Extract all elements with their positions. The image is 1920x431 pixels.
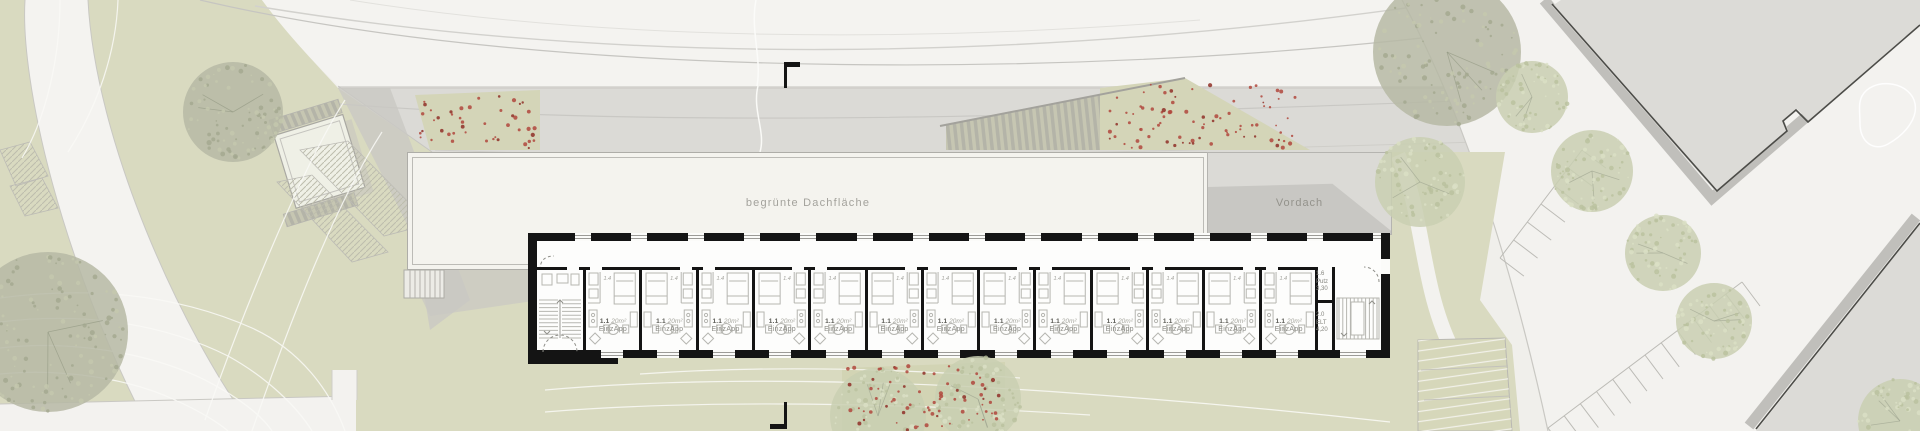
window xyxy=(995,350,1017,358)
window xyxy=(1251,233,1267,241)
window xyxy=(1194,233,1210,241)
apartment-label: 1.1 20m²EinzApp xyxy=(1093,318,1147,334)
canopy-label: Vordach xyxy=(1208,197,1391,209)
window xyxy=(688,233,704,241)
apartment-furniture: 1.4 xyxy=(699,270,752,350)
window xyxy=(882,350,904,358)
terrace-hatches xyxy=(0,141,430,262)
window xyxy=(1025,233,1041,241)
promenade-curve xyxy=(340,98,1540,118)
apartment-furniture: 1.4 xyxy=(586,270,639,350)
apartment-furniture: 1.4 xyxy=(980,270,1033,350)
apartment-label: 1.1 20m²EinzApp xyxy=(1205,318,1259,334)
window xyxy=(575,233,591,241)
window xyxy=(631,233,647,241)
pavilion xyxy=(256,97,376,227)
svg-text:1.4: 1.4 xyxy=(896,276,904,282)
footpath-edge xyxy=(25,0,150,431)
stair-north-wall xyxy=(579,267,583,270)
existing-building-southeast xyxy=(1749,217,1920,431)
tree xyxy=(1373,0,1521,126)
garden-beds xyxy=(1418,338,1512,431)
window xyxy=(969,233,985,241)
tree xyxy=(830,367,926,431)
path-connector xyxy=(332,370,357,400)
canopy: Vordach xyxy=(1207,152,1392,235)
window xyxy=(713,350,735,358)
path-south xyxy=(0,396,356,431)
apartment-furniture: 1.4 xyxy=(1036,270,1089,350)
path-edge xyxy=(0,396,356,404)
window xyxy=(1381,259,1390,274)
west-wall xyxy=(528,233,537,364)
window xyxy=(1220,350,1242,358)
apartment-label: 1.1 20m²EinzApp xyxy=(642,318,696,334)
svg-text:1.4: 1.4 xyxy=(783,276,791,282)
tree xyxy=(1551,130,1633,212)
path-edge xyxy=(332,370,357,400)
window xyxy=(1340,350,1366,358)
footpath-edge xyxy=(88,0,255,431)
window xyxy=(826,350,848,358)
svg-text:1.4: 1.4 xyxy=(670,276,678,282)
tree xyxy=(183,62,284,162)
promenade xyxy=(338,86,1545,152)
footpath-west xyxy=(25,0,255,431)
window xyxy=(1138,233,1154,241)
meadow-east xyxy=(1390,152,1520,431)
tree xyxy=(1496,61,1569,133)
meadow-south xyxy=(528,355,1390,431)
street-north xyxy=(262,0,1520,86)
promenade-edge xyxy=(338,86,432,152)
window xyxy=(857,233,873,241)
stairwell-west xyxy=(537,241,583,353)
stair-north-wall xyxy=(537,267,567,270)
apartment-furniture: 1.4 xyxy=(642,270,695,350)
east-wall xyxy=(1381,233,1390,358)
apartment-label: 1.1 20m²EinzApp xyxy=(755,318,809,334)
contour-line xyxy=(754,0,758,86)
existing-building-northeast xyxy=(1544,0,1920,198)
canopy-shadow xyxy=(1208,153,1391,234)
apartment-furniture: 1.4 xyxy=(1205,270,1258,350)
window xyxy=(1107,350,1129,358)
apartment-label: 1.1 20m²EinzApp xyxy=(924,318,978,334)
lawn-curve xyxy=(1860,84,1916,147)
apartment-label: 1.1 20m²EinzApp xyxy=(1149,318,1203,334)
window xyxy=(1051,350,1073,358)
apartment-furniture: 1.4 xyxy=(1149,270,1202,350)
path-east xyxy=(1398,155,1488,431)
site-plan: begrünte Dachfläche Vordach +14,05 1.41.… xyxy=(0,0,1920,431)
window xyxy=(938,350,960,358)
flower-patch-west xyxy=(415,90,540,150)
window xyxy=(1373,233,1381,241)
tree xyxy=(1857,378,1920,431)
exterior-steps xyxy=(404,270,444,298)
apartment-furniture: 1.4 xyxy=(755,270,808,350)
street-east xyxy=(1402,0,1920,431)
window xyxy=(800,233,816,241)
apartment-label: 1.1 20m²EinzApp xyxy=(586,318,640,334)
tree xyxy=(1625,214,1701,292)
street-curve xyxy=(350,0,1200,35)
apartment-label: 1.1 20m²EinzApp xyxy=(1036,318,1090,334)
apartment-label: 1.1 20m²EinzApp xyxy=(1262,318,1316,334)
apartment-furniture: 1.4 xyxy=(811,270,864,350)
window xyxy=(1276,350,1298,358)
window xyxy=(1164,350,1186,358)
pergola-stripes xyxy=(940,78,1185,150)
window xyxy=(657,350,679,358)
flower-patch-east xyxy=(1100,78,1310,150)
tree xyxy=(0,252,128,413)
window xyxy=(913,233,929,241)
svg-text:1.4: 1.4 xyxy=(1234,276,1242,282)
svg-text:1.4: 1.4 xyxy=(1054,276,1062,282)
parking-stalls xyxy=(1500,150,1884,431)
apartment-label: 1.1 20m²EinzApp xyxy=(699,318,753,334)
apartment-building-plan: +14,05 1.41.1 20m²EinzApp1.41.1 20m²Einz… xyxy=(528,233,1390,364)
svg-text:1.4: 1.4 xyxy=(829,276,837,282)
tree xyxy=(934,356,1022,431)
street-east-edge xyxy=(1402,0,1548,431)
contour-line xyxy=(756,86,761,152)
apartment-label: 1.1 20m²EinzApp xyxy=(811,318,865,334)
apartment-furniture: 1.4 xyxy=(1093,270,1146,350)
apartment-label: 1.1 20m²EinzApp xyxy=(980,318,1034,334)
apartment-label: 1.1 20m²EinzApp xyxy=(868,318,922,334)
flower-patch-south xyxy=(842,362,1005,431)
apartment-furniture: 1.4 xyxy=(868,270,921,350)
service-room-label: 2.0ELT4,20 xyxy=(1316,312,1332,335)
service-divider xyxy=(1318,300,1332,303)
apartment-furniture: 1.4 xyxy=(924,270,977,350)
window xyxy=(1307,233,1323,241)
svg-text:1.4: 1.4 xyxy=(603,276,611,282)
svg-text:1.4: 1.4 xyxy=(1121,276,1129,282)
svg-text:1.4: 1.4 xyxy=(716,276,724,282)
street-curve xyxy=(255,6,1420,50)
roof-label: begrünte Dachfläche xyxy=(408,197,1208,209)
svg-text:1.4: 1.4 xyxy=(1008,276,1016,282)
street-curve xyxy=(200,0,1488,65)
svg-text:1.4: 1.4 xyxy=(1279,276,1287,282)
service-room-label: 1.6Putz3,30 xyxy=(1316,271,1332,294)
window xyxy=(1082,233,1098,241)
svg-text:1.4: 1.4 xyxy=(941,276,949,282)
apartment-furniture: 1.4 xyxy=(1262,270,1315,350)
tree xyxy=(1676,283,1753,361)
svg-text:1.4: 1.4 xyxy=(1167,276,1175,282)
stairwell-east xyxy=(1335,241,1381,350)
window xyxy=(769,350,791,358)
window xyxy=(744,233,760,241)
window xyxy=(601,350,623,358)
